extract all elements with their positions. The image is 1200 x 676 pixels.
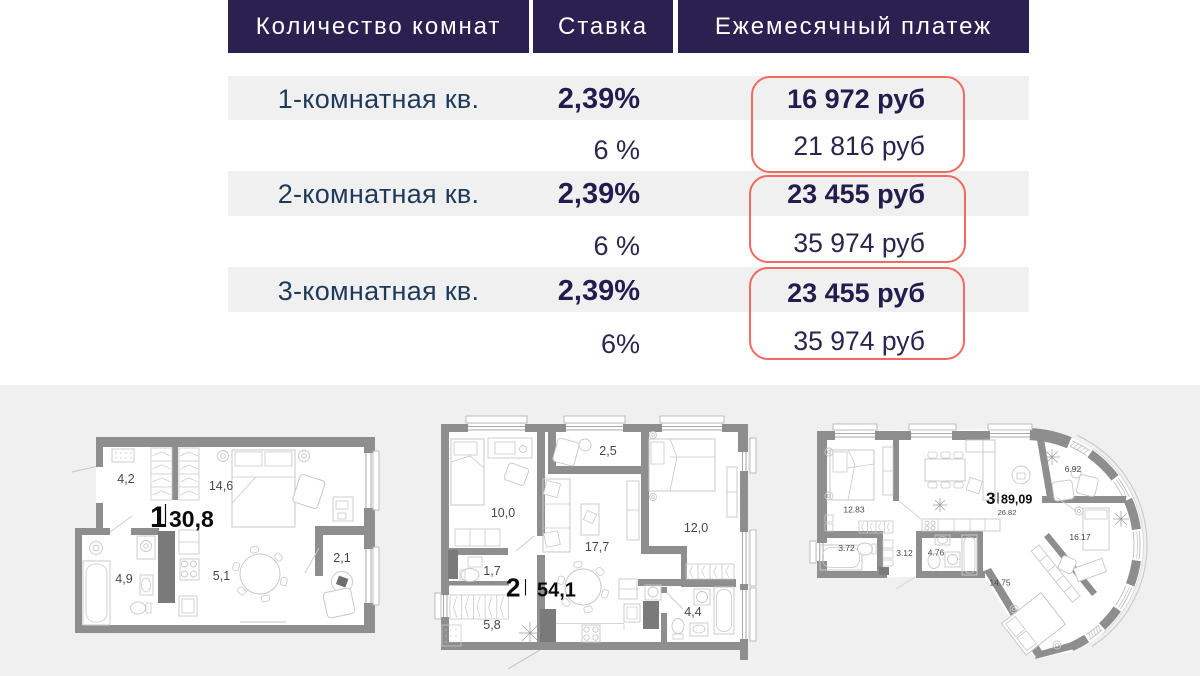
svg-text:2: 2 [506, 573, 520, 603]
svg-text:6.92: 6.92 [1065, 464, 1082, 474]
svg-text:26.82: 26.82 [998, 508, 1017, 517]
svg-text:2,5: 2,5 [599, 444, 616, 458]
svg-text:4,9: 4,9 [115, 572, 132, 586]
svg-text:1: 1 [150, 501, 167, 534]
svg-text:10,0: 10,0 [491, 506, 515, 520]
svg-text:4.76: 4.76 [928, 548, 945, 558]
svg-text:5,8: 5,8 [483, 618, 500, 632]
svg-text:54,1: 54,1 [537, 580, 576, 602]
svg-text:14,6: 14,6 [209, 479, 233, 493]
svg-text:3.12: 3.12 [896, 548, 913, 558]
svg-text:17,7: 17,7 [585, 540, 609, 554]
svg-text:3: 3 [986, 489, 995, 508]
svg-text:14.75: 14.75 [989, 578, 1011, 588]
svg-text:4,2: 4,2 [117, 472, 134, 486]
svg-text:89,09: 89,09 [1001, 493, 1032, 507]
svg-text:2,1: 2,1 [333, 551, 350, 565]
svg-text:16.17: 16.17 [1069, 532, 1091, 542]
svg-text:1,7: 1,7 [483, 564, 500, 578]
svg-text:3.72: 3.72 [838, 543, 855, 553]
svg-text:12.83: 12.83 [843, 505, 865, 515]
svg-text:30,8: 30,8 [169, 506, 214, 532]
svg-text:4,4: 4,4 [684, 605, 701, 619]
svg-text:5,1: 5,1 [213, 569, 230, 583]
svg-text:12,0: 12,0 [684, 521, 708, 535]
